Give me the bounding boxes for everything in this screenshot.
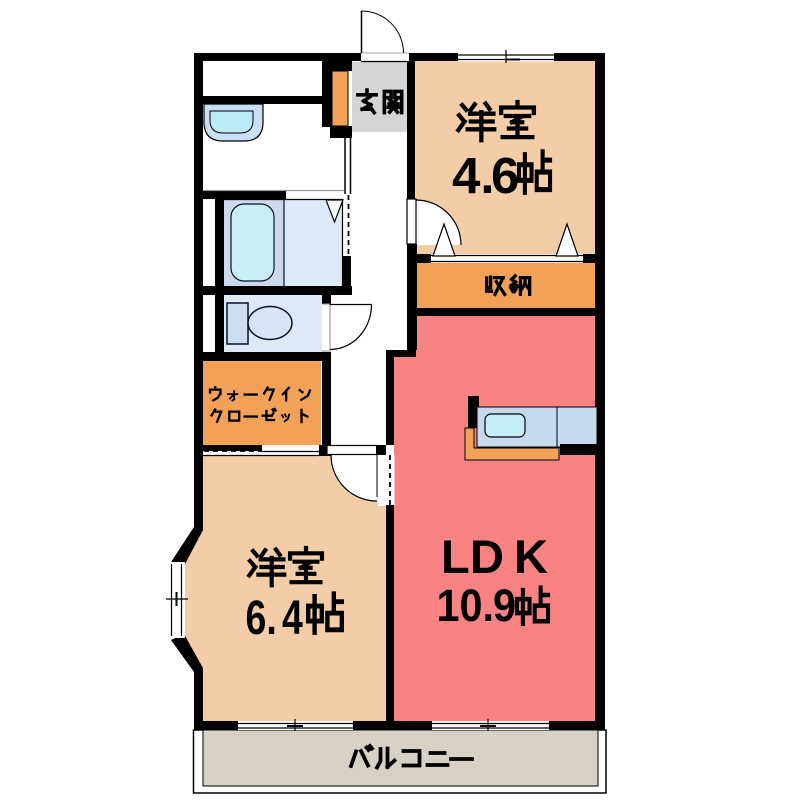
svg-text:4: 4 xyxy=(282,592,303,646)
svg-text:K: K xyxy=(514,530,548,583)
svg-text:9: 9 xyxy=(493,581,516,631)
svg-text:10.: 10. xyxy=(437,581,495,631)
svg-text:D: D xyxy=(470,530,504,583)
svg-text:6: 6 xyxy=(491,147,519,204)
svg-text:4.: 4. xyxy=(452,147,495,204)
svg-text:6.: 6. xyxy=(246,592,277,646)
svg-text:L: L xyxy=(441,530,470,583)
